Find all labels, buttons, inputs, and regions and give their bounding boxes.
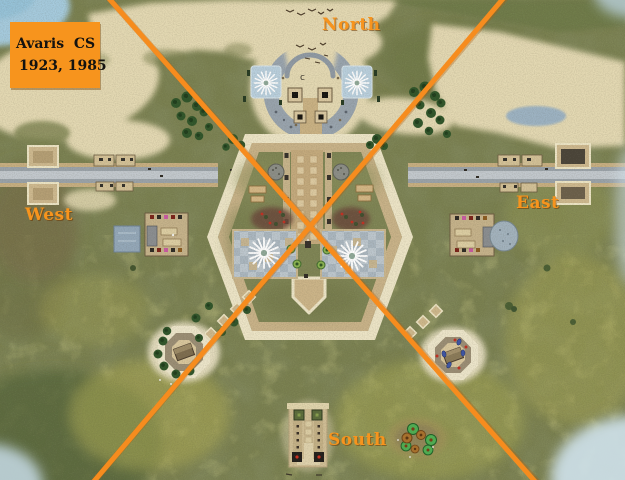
map-viewport[interactable]: c	[0, 0, 625, 480]
map-title-box: Avaris CS 1923, 1985	[10, 22, 100, 88]
map-title-line2: 1923, 1985	[19, 55, 100, 77]
compass-label-west: West	[25, 205, 73, 225]
compass-label-east: East	[516, 193, 559, 213]
map-title-line1: Avaris CS	[16, 33, 100, 55]
compass-label-south: South	[328, 430, 387, 450]
compass-label-north: North	[322, 15, 381, 35]
